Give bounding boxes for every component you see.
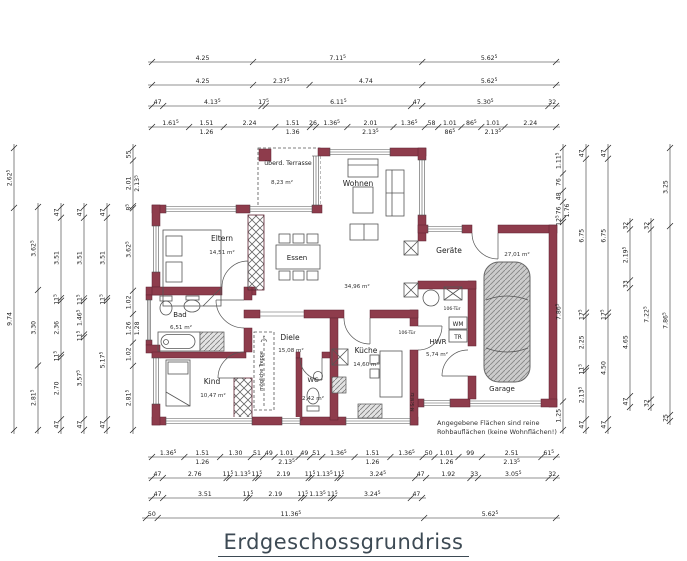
- dim-label: 1.135: [309, 490, 326, 498]
- drawing-title: Erdgeschossgrundriss: [0, 530, 687, 557]
- dim-label: 1.01: [443, 120, 457, 127]
- room-area-wohnen: 34,96 m²: [344, 283, 369, 290]
- dimension-chain-top: 4.257.1155.6254.252.3754.745.625474.1351…: [148, 54, 560, 136]
- dim-label: 3.30: [30, 321, 37, 335]
- plan-label: M-Schlitz: [410, 392, 415, 412]
- dim-label: 3.51: [198, 491, 212, 498]
- dim-label: 1.365: [398, 449, 415, 457]
- dim-label: 1.01: [440, 450, 454, 457]
- dim-label: 1.51: [366, 450, 380, 457]
- dim-label: 47: [76, 208, 83, 216]
- dim-label: 865: [444, 128, 455, 136]
- dim-label: 1.135: [316, 470, 333, 478]
- room-label-wc: WC: [308, 376, 319, 384]
- dim-label: 47: [99, 208, 106, 216]
- dim-label: 76: [555, 206, 562, 214]
- dim-label: 47: [99, 421, 106, 429]
- dim-label: 47: [53, 208, 60, 216]
- door-geraete: [472, 233, 498, 259]
- dim-label: 47: [600, 149, 607, 157]
- dim-label: 1.26: [195, 459, 209, 466]
- dim-label: 2.815: [30, 389, 38, 406]
- dim-label: 1.365: [323, 119, 340, 127]
- dim-label: 47: [413, 99, 421, 106]
- dim-label: 2.01: [125, 176, 132, 190]
- door-bad: [216, 300, 244, 328]
- dim-label: 6.75: [578, 229, 585, 243]
- dim-label: 3.575: [76, 370, 84, 387]
- dim-label: 49: [265, 450, 273, 457]
- room-label-diele: Diele: [280, 333, 300, 342]
- dim-label: 2.135: [503, 458, 520, 466]
- dim-label: 32: [548, 471, 556, 478]
- dim-label: 4.135: [204, 98, 221, 106]
- terrace-outline: [258, 148, 320, 207]
- dim-label: 32: [643, 399, 650, 407]
- dim-label: 3.625: [125, 241, 133, 258]
- dim-label: 115: [243, 490, 254, 498]
- dim-label: 2.70: [53, 381, 60, 395]
- room-label-eltern: Eltern: [211, 234, 233, 243]
- dim-label: 49: [300, 450, 308, 457]
- dim-label: 4.65: [622, 335, 629, 349]
- dim-label: 2.195: [622, 246, 630, 263]
- dim-label: 47: [622, 398, 629, 406]
- dim-label: 32: [622, 222, 629, 230]
- dim-label: 1.51: [286, 120, 300, 127]
- dim-label: 1.26: [440, 459, 454, 466]
- dim-label: 32: [548, 99, 556, 106]
- kitchen-fixtures: [332, 349, 402, 418]
- dim-label: 2.375: [273, 77, 290, 85]
- dim-label: 115: [578, 364, 586, 375]
- dim-label: 115: [76, 294, 84, 305]
- plan-label: TR: [453, 335, 462, 341]
- dim-label: 32: [643, 222, 650, 230]
- chimney-shaft: [234, 378, 252, 420]
- dim-label: 2.135: [278, 458, 295, 466]
- dim-label: 47: [76, 421, 83, 429]
- dim-label: 1.28: [134, 321, 141, 335]
- dim-label: 7.225: [643, 306, 651, 323]
- dim-label: 1.365: [160, 449, 177, 457]
- dim-label: 3.25: [662, 180, 669, 194]
- dim-label: 47: [412, 491, 420, 498]
- dim-label: 11.365: [281, 510, 302, 518]
- dim-label: 1.135: [234, 470, 251, 478]
- dim-label: 3.51: [99, 251, 106, 265]
- dim-label: 85: [125, 204, 133, 211]
- plan-label: 106-Tür: [399, 330, 416, 336]
- room-label-geraete: Geräte: [436, 246, 462, 255]
- room-label-hwr: HWR: [429, 338, 446, 346]
- dim-label: 2.01: [364, 120, 378, 127]
- dim-label: 1.26: [200, 129, 214, 136]
- dim-label: 1.01: [486, 120, 500, 127]
- dim-label: 76: [555, 178, 562, 186]
- room-area-geraete: 27,01 m²: [504, 251, 529, 258]
- dim-label: 125: [555, 215, 563, 226]
- dim-label: 50: [425, 450, 433, 457]
- dim-label: 115: [251, 470, 262, 478]
- dim-label: 115: [334, 470, 345, 478]
- dim-label: 175: [578, 309, 586, 320]
- dim-label: 47: [417, 471, 425, 478]
- dim-label: 3.51: [76, 251, 83, 265]
- dim-label: 99: [466, 450, 474, 457]
- dim-label: 2.135: [362, 128, 379, 136]
- dim-label: 115: [305, 470, 316, 478]
- dim-label: 2.625: [6, 169, 14, 186]
- dim-label: 47: [53, 421, 60, 429]
- dim-label: 47: [600, 421, 607, 429]
- misc-labels: 106-Tür106-Türmögliche TreppeM-SchlitzWM…: [259, 306, 463, 411]
- dim-label: 6.115: [330, 98, 347, 106]
- room-area-kueche: 14,60 m²: [353, 361, 378, 368]
- dim-label: 2.19: [268, 491, 282, 498]
- dim-label: 2.24: [243, 120, 257, 127]
- bathroom-fixtures: [158, 296, 224, 351]
- dim-label: 33: [470, 471, 478, 478]
- dim-label: 1.115: [555, 152, 563, 169]
- dim-label: 5.175: [99, 352, 107, 369]
- plan-label: WM: [453, 322, 464, 328]
- room-area-kind: 10,47 m²: [200, 392, 225, 399]
- dim-label: 3.51: [53, 251, 60, 265]
- dim-label: 1.30: [229, 450, 243, 457]
- dim-label: 865: [466, 119, 477, 127]
- dim-label: 115: [76, 330, 84, 341]
- dim-label: 1.01: [280, 450, 294, 457]
- dim-label: 7.865: [555, 303, 563, 320]
- sofa-group: [348, 159, 404, 240]
- dim-label: 1.02: [125, 295, 132, 309]
- wall-boxes: [404, 241, 418, 297]
- dim-label: 2.51: [505, 450, 519, 457]
- room-label-essen: Essen: [287, 254, 307, 262]
- dim-label: 1.26: [125, 321, 132, 335]
- dim-label: 115: [297, 490, 308, 498]
- floor-plan-drawing: 4.257.1155.6254.252.3754.745.625474.1351…: [0, 0, 687, 561]
- dim-label: 7.865: [662, 312, 670, 329]
- dim-label: 47: [153, 471, 161, 478]
- dim-label: 5.625: [481, 54, 498, 62]
- floor-plan-page: 4.257.1155.6254.252.3754.745.625474.1351…: [0, 0, 687, 561]
- dim-label: 5.625: [481, 77, 498, 85]
- garage-door-lines: [470, 401, 541, 406]
- dim-label: 51: [253, 450, 261, 457]
- dim-label: 3.625: [30, 240, 38, 257]
- dim-label: 1.51: [195, 450, 209, 457]
- room-area-bad: 6,51 m²: [170, 324, 192, 331]
- dim-label: 175: [600, 309, 608, 320]
- dim-label: 2.25: [578, 335, 585, 349]
- opening-wohnen-diele: [260, 312, 304, 316]
- dimension-chain-bottom: 1.3651.511.261.3051491.012.13549511.3651…: [142, 449, 560, 521]
- dim-label: 4.74: [359, 78, 373, 85]
- room-label-kueche: Küche: [355, 346, 378, 355]
- room-label-kind: Kind: [204, 377, 221, 386]
- dim-label: 33: [622, 280, 629, 288]
- dim-label: 4.25: [196, 55, 210, 62]
- room-area-wc: 2,42 m²: [302, 395, 324, 402]
- dim-label: 3.245: [364, 490, 381, 498]
- door-eltern: [222, 261, 248, 287]
- dim-label: 2.36: [53, 321, 60, 335]
- dim-label: 1.51: [200, 120, 214, 127]
- drawing-title-text: Erdgeschossgrundriss: [218, 530, 470, 557]
- dim-label: 6.75: [600, 229, 607, 243]
- geraete-fixtures: [423, 287, 462, 306]
- dim-label: 47: [578, 149, 585, 157]
- dim-label: 51: [312, 450, 320, 457]
- room-area-diele: 15,08 m²: [278, 347, 303, 354]
- dim-label: 47: [154, 99, 162, 106]
- dim-label: 2.24: [523, 120, 537, 127]
- dim-label: 1.92: [441, 471, 455, 478]
- dim-label: 2.135: [485, 128, 502, 136]
- room-label-garage: Garage: [489, 385, 515, 393]
- room-area-eltern: 14,51 m²: [209, 249, 234, 256]
- dim-label: 4.25: [196, 78, 210, 85]
- room-label-terrasse: überd. Terrasse: [264, 160, 312, 167]
- dimension-chain-right: 1.1157648761.761257.8651.25476.751752.25…: [555, 144, 673, 434]
- dim-label: 2.815: [125, 389, 133, 406]
- dim-label: 115: [53, 294, 61, 305]
- dim-label: 9.74: [6, 312, 13, 326]
- dim-label: 5.305: [477, 98, 494, 106]
- dim-label: 1.76: [564, 203, 571, 217]
- dim-label: 1.365: [401, 119, 418, 127]
- area-note-line2: Rohbauflächen (keine Wohnflächen!): [437, 428, 557, 437]
- room-area-terrasse: 8,23 m²: [271, 179, 293, 186]
- dim-label: 25: [662, 414, 669, 422]
- plan-label: 106-Tür: [444, 306, 461, 312]
- dim-label: 2.19: [277, 471, 291, 478]
- dim-label: 26: [309, 120, 317, 127]
- dim-label: 5.625: [482, 510, 499, 518]
- dim-label: 2.135: [133, 175, 141, 192]
- bed-kind: [166, 360, 190, 406]
- dim-label: 4.50: [600, 361, 607, 375]
- area-note-line1: Angegebene Flächen sind reine: [437, 419, 557, 428]
- room-area-hwr: 5,74 m²: [426, 351, 448, 358]
- area-note: Angegebene Flächen sind reine Rohbaufläc…: [437, 419, 557, 437]
- dim-label: 50: [148, 511, 156, 518]
- dim-label: 1.36: [286, 129, 300, 136]
- dim-label: 47: [154, 491, 162, 498]
- room-label-bad: Bad: [173, 311, 187, 319]
- room-label-wohnen: Wohnen: [343, 179, 374, 188]
- plan-label: mögliche Treppe: [259, 351, 265, 391]
- door-kueche: [344, 318, 370, 344]
- dim-label: 58: [428, 120, 436, 127]
- dim-label: 7.115: [329, 54, 346, 62]
- dim-label: 3.055: [505, 470, 522, 478]
- dim-label: 1.02: [125, 347, 132, 361]
- dim-label: 1.615: [162, 119, 179, 127]
- dim-label: 115: [223, 470, 234, 478]
- dim-label: 47: [578, 421, 585, 429]
- dim-label: 1.465: [76, 309, 84, 326]
- dim-label: 115: [53, 351, 61, 362]
- dimension-chain-left: 2.6259.743.6253.302.815473.511152.361152…: [6, 144, 142, 434]
- dim-label: 2.135: [578, 386, 586, 403]
- dim-label: 115: [327, 490, 338, 498]
- dim-label: 115: [99, 294, 107, 305]
- chimney-shaft: [248, 215, 264, 290]
- car: [484, 262, 530, 382]
- dim-label: 1.26: [366, 459, 380, 466]
- dim-label: 55: [125, 150, 132, 158]
- dim-label: 48: [555, 192, 562, 200]
- dim-label: 1.365: [330, 449, 347, 457]
- dim-label: 2.76: [188, 471, 202, 478]
- dim-label: 615: [543, 449, 554, 457]
- dim-label: 3.245: [369, 470, 386, 478]
